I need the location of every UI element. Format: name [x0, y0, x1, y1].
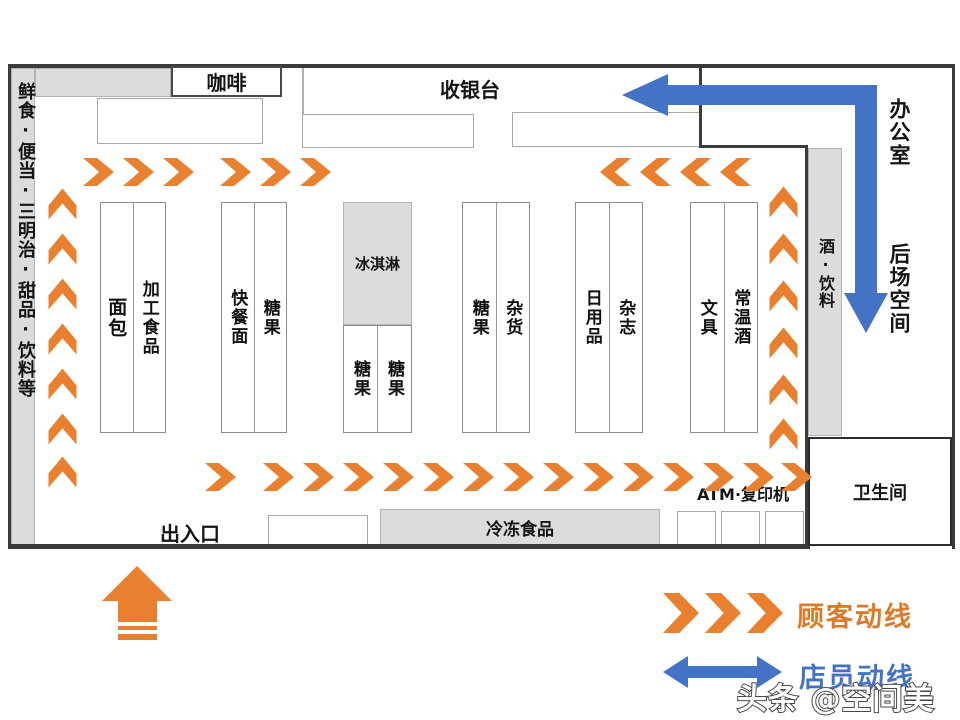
customer-flow-chevron-icon — [220, 158, 251, 186]
shelf-stationery-wine: 文具 常温酒 — [690, 202, 758, 433]
customer-flow-chevron-icon — [640, 158, 671, 186]
shelf-candy-small: 糖果 糖果 — [343, 325, 412, 433]
customer-flow-chevron-icon — [663, 463, 694, 491]
customer-flow-chevron-icon — [343, 463, 374, 491]
cashier-label: 收银台 — [390, 74, 550, 103]
customer-flow-chevron-icon — [600, 158, 631, 186]
shelf-column: 糖果 — [344, 326, 377, 432]
legend-customer-flow-label: 顾客动线 — [797, 595, 913, 634]
ice-cream-label: 冰淇淋 — [355, 253, 400, 274]
legend-customer-chevron-icon — [747, 593, 783, 633]
entrance-label: 出入口 — [130, 518, 250, 547]
shelf-column: 糖果 — [254, 203, 287, 432]
shelf-column: 杂志 — [609, 203, 643, 432]
entrance-fixture — [268, 515, 368, 546]
customer-flow-chevron-icon — [49, 324, 77, 355]
store-floorplan: 鲜食·便当·三明治·甜品·饮料等 酒·饮料 咖啡 收银台 办公室 后场空间 卫生… — [0, 0, 960, 720]
shelf-column: 面包 — [101, 203, 133, 432]
shelf-label: 糖果 — [467, 299, 492, 337]
wall-right — [952, 64, 955, 549]
cashier-counter-left — [302, 114, 474, 148]
office-label: 办公室 — [884, 98, 914, 167]
customer-flow-chevron-icon — [770, 419, 798, 450]
shelf-bread: 面包 加工食品 — [100, 202, 166, 433]
customer-flow-chevron-icon — [123, 158, 154, 186]
frozen-food-label: 冷冻食品 — [486, 515, 554, 540]
shelf-daily-magazine: 日用品 杂志 — [575, 202, 643, 433]
area-coffee: 咖啡 — [171, 66, 282, 97]
coffee-label: 咖啡 — [207, 67, 247, 96]
wall-bottom — [8, 544, 810, 549]
fresh-food-strip-label: 鲜食·便当·三明治·甜品·饮料等 — [12, 82, 38, 398]
shelf-label: 杂货 — [500, 299, 525, 337]
shelf-label: 加工食品 — [137, 280, 162, 356]
shelf-column: 加工食品 — [133, 203, 166, 432]
coffee-counter — [97, 98, 263, 144]
shelf-column: 日用品 — [576, 203, 609, 432]
shelf-column: 杂货 — [496, 203, 530, 432]
customer-flow-chevron-icon — [770, 281, 798, 312]
customer-flow-chevron-icon — [583, 463, 614, 491]
customer-flow-chevron-icon — [543, 463, 574, 491]
customer-flow-chevron-icon — [263, 463, 294, 491]
customer-flow-chevron-icon — [260, 158, 291, 186]
atm-fixture — [765, 511, 804, 546]
atm-fixture — [721, 511, 760, 546]
shelf-column: 快餐面 — [222, 203, 254, 432]
shelf-label: 常温酒 — [728, 289, 753, 346]
area-topleft-block — [35, 68, 171, 97]
customer-flow-chevron-icon — [205, 463, 236, 491]
customer-flow-chevron-icon — [383, 463, 414, 491]
customer-flow-chevron-icon — [770, 375, 798, 406]
customer-flow-chevron-icon — [720, 158, 751, 186]
shelf-label: 面包 — [103, 297, 130, 339]
customer-flow-chevron-icon — [303, 463, 334, 491]
customer-flow-chevron-icon — [423, 463, 454, 491]
customer-flow-chevron-icon — [49, 369, 77, 400]
customer-flow-chevron-icon — [300, 158, 331, 186]
cashier-area-line — [302, 66, 304, 115]
shelf-column: 常温酒 — [724, 203, 758, 432]
drinks-label: 酒·饮料 — [813, 238, 837, 309]
entrance-arrow-icon — [102, 566, 172, 640]
legend-customer-chevron-icon — [663, 593, 699, 633]
shelf-column: 文具 — [691, 203, 724, 432]
wall-top — [8, 64, 955, 68]
area-ice-cream: 冰淇淋 — [343, 202, 412, 325]
wall-office-bottom — [699, 145, 808, 148]
customer-flow-chevron-icon — [49, 457, 77, 488]
legend-customer-chevron-icon — [705, 593, 741, 633]
customer-flow-chevron-icon — [49, 189, 77, 220]
customer-flow-chevron-icon — [49, 414, 77, 445]
customer-flow-chevron-icon — [680, 158, 711, 186]
customer-flow-chevron-icon — [770, 328, 798, 359]
customer-flow-chevron-icon — [463, 463, 494, 491]
customer-flow-chevron-icon — [83, 158, 114, 186]
shelf-column: 糖果 — [377, 326, 411, 432]
atm-fixture — [677, 511, 716, 546]
shelf-noodles: 快餐面 糖果 — [221, 202, 287, 433]
area-frozen-food: 冷冻食品 — [380, 509, 660, 546]
shelf-label: 杂志 — [613, 299, 638, 337]
wall-left — [8, 64, 11, 549]
customer-flow-chevron-icon — [623, 463, 654, 491]
shelf-candy-grocery: 糖果 杂货 — [462, 202, 530, 433]
shelf-label: 文具 — [695, 299, 720, 337]
backroom-label: 后场空间 — [884, 243, 914, 335]
cashier-counter-right — [512, 112, 700, 147]
area-restroom: 卫生间 — [808, 437, 952, 546]
watermark: 头条 @空间美刻度 — [737, 674, 960, 720]
shelf-label: 日用品 — [580, 289, 605, 346]
shelf-label: 糖果 — [348, 360, 373, 398]
customer-flow-chevron-icon — [770, 234, 798, 265]
customer-flow-chevron-icon — [49, 234, 77, 265]
customer-flow-chevron-icon — [49, 279, 77, 310]
customer-flow-chevron-icon — [770, 187, 798, 218]
shelf-label: 糖果 — [382, 360, 407, 398]
customer-flow-chevron-icon — [163, 158, 194, 186]
shelf-column: 糖果 — [463, 203, 496, 432]
wall-office-left — [699, 64, 702, 147]
customer-flow-chevron-icon — [503, 463, 534, 491]
shelf-label: 快餐面 — [225, 289, 250, 346]
restroom-label: 卫生间 — [853, 479, 907, 505]
shelf-label: 糖果 — [258, 299, 283, 337]
